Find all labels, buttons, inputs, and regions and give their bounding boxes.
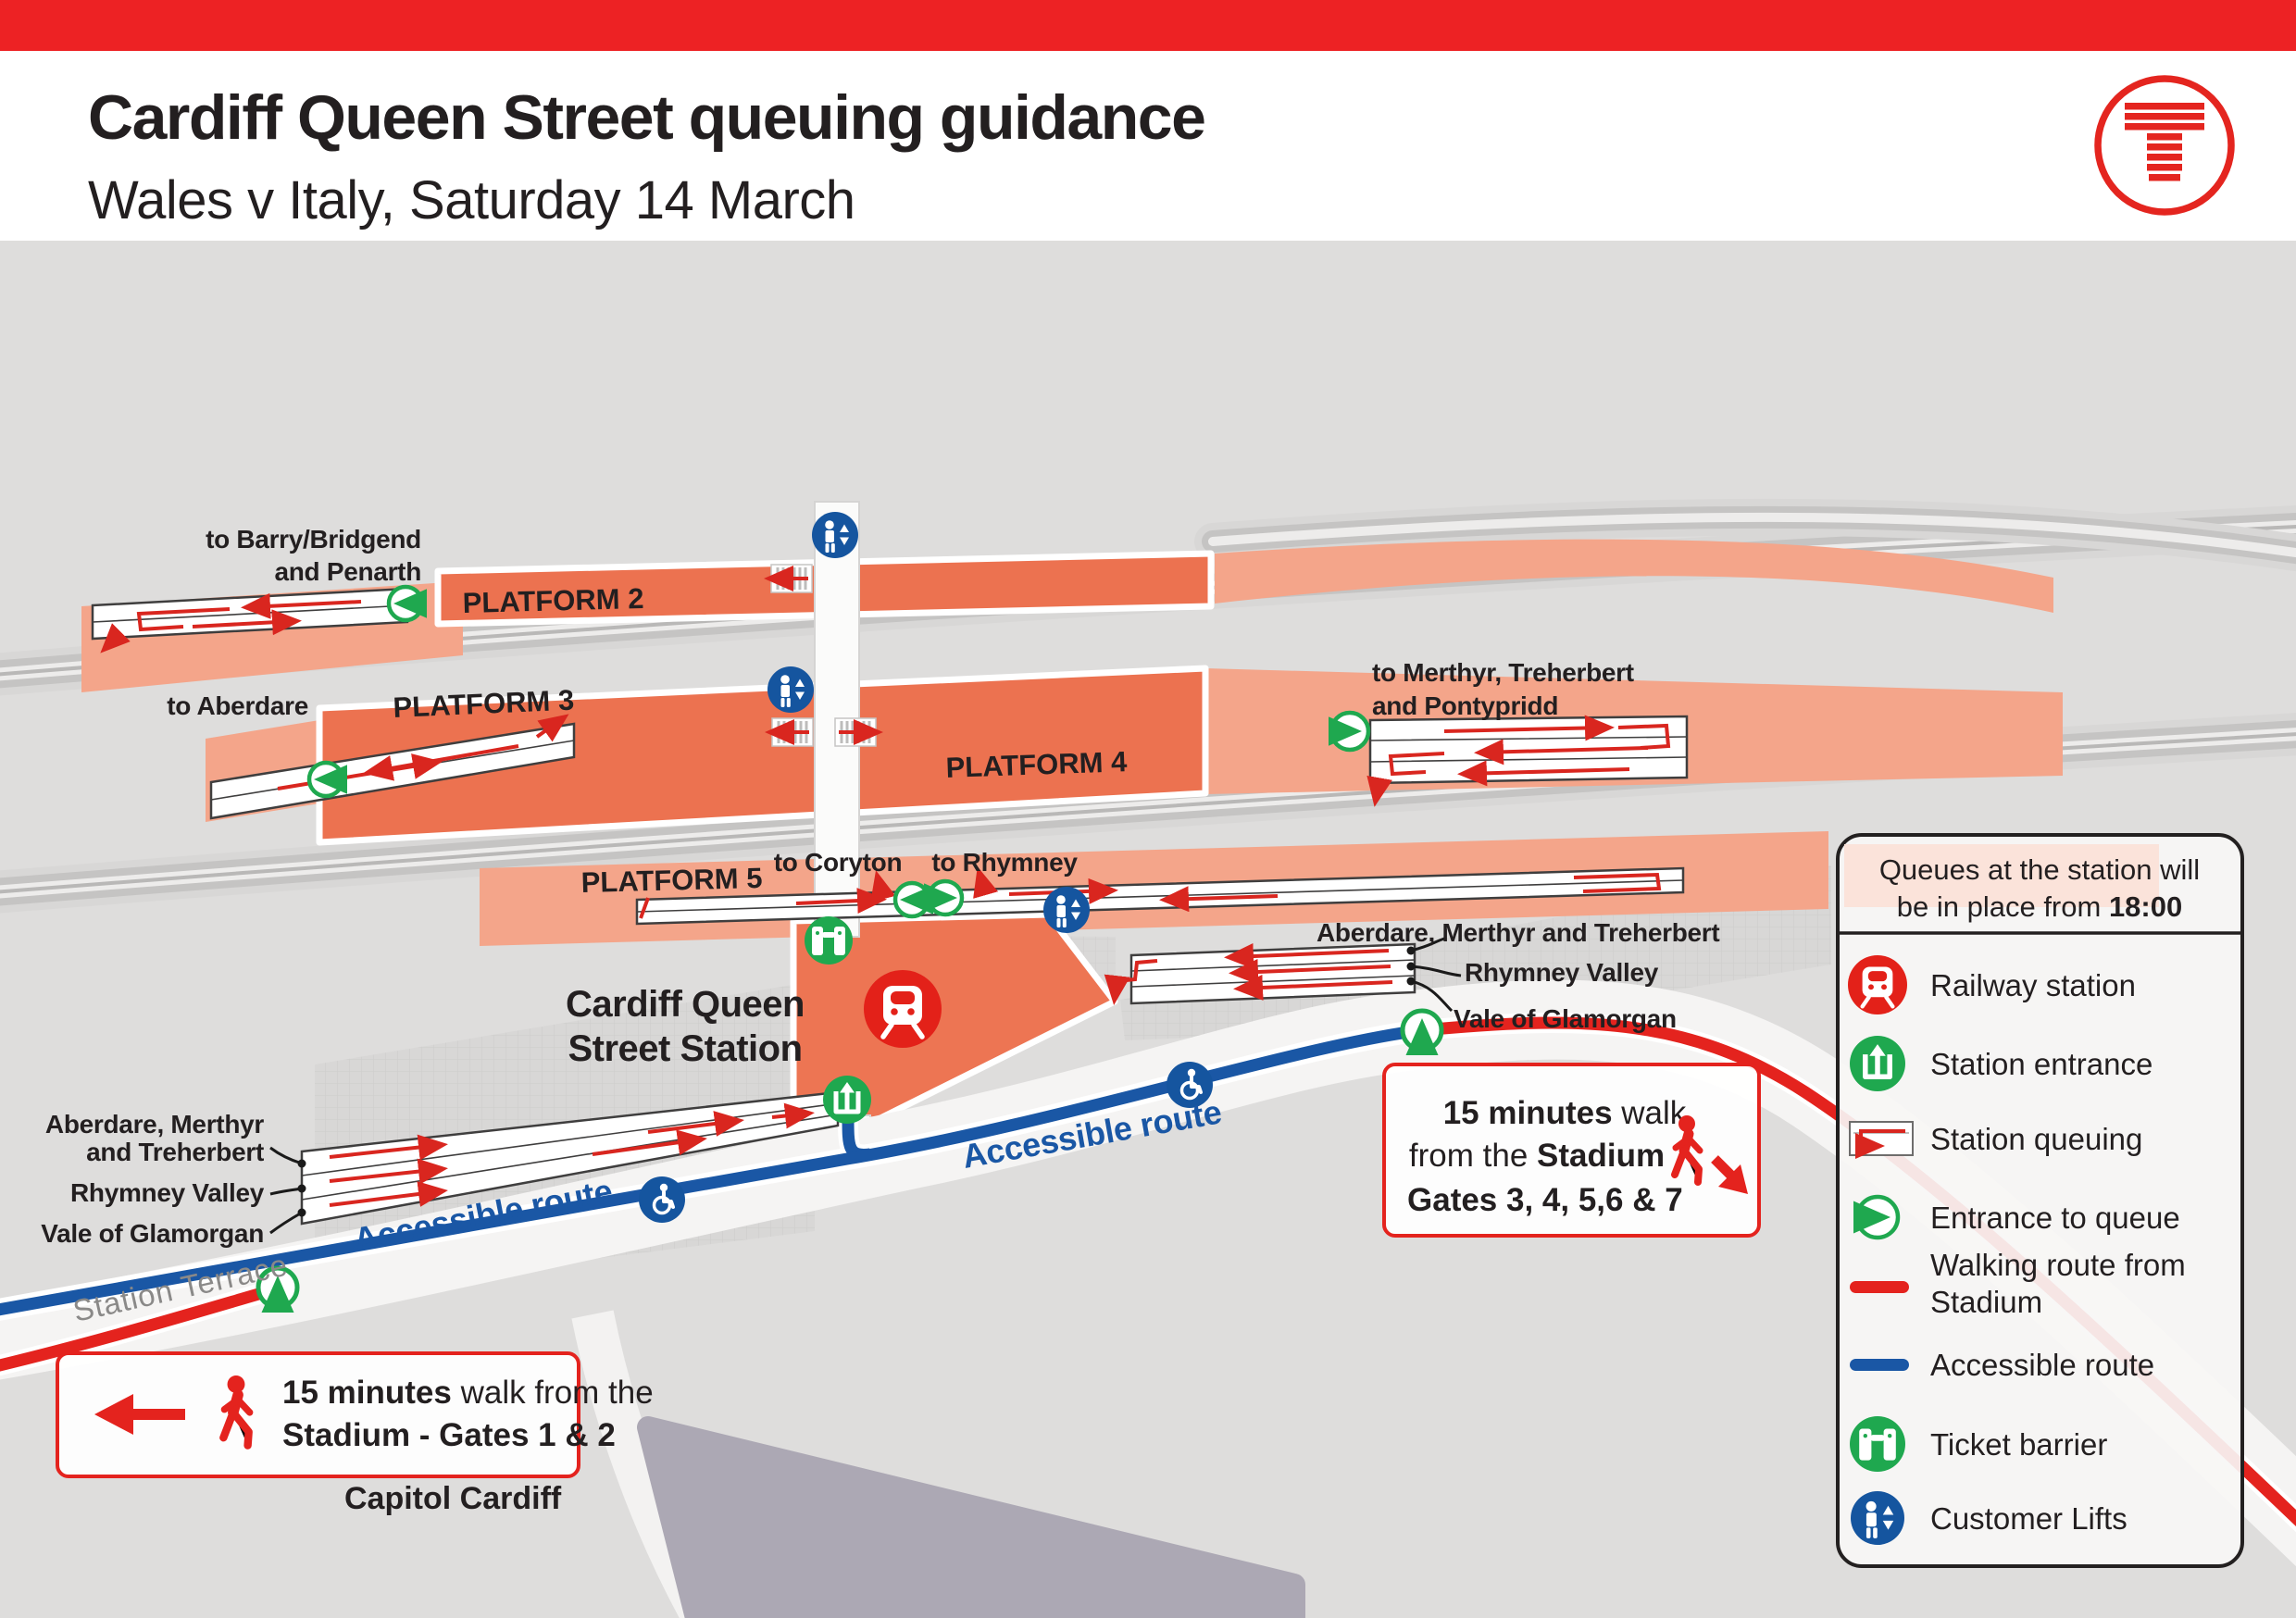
station-name-line2: Street Station (568, 1028, 802, 1069)
legend-railway-station-icon (1848, 955, 1907, 1014)
station-entrance-icon (823, 1076, 871, 1124)
legend-item-label: Walking route from (1930, 1248, 2186, 1282)
queue-entrance-icon-left-arrow (309, 763, 343, 796)
dest-coryton: to Coryton (774, 848, 903, 877)
platform-5-label: PLATFORM 5 (580, 862, 763, 899)
dest-merthyr-line1: to Merthyr, Treherbert (1372, 658, 1634, 687)
legend-item-label: Entrance to queue (1930, 1201, 2180, 1235)
queue-line-right-3: Vale of Glamorgan (1454, 1004, 1677, 1033)
customer-lift-icon (812, 512, 858, 558)
walk-box-right-line1: 15 minutes walk (1443, 1095, 1687, 1131)
header: Cardiff Queen Street queuing guidance Wa… (0, 0, 2296, 241)
dest-barry-line1: to Barry/Bridgend (206, 525, 421, 554)
station-name-line1: Cardiff Queen (566, 984, 805, 1025)
queue-line-left-1b: and Treherbert (86, 1138, 264, 1166)
walk-box-right-line2: from the Stadium (1409, 1138, 1665, 1174)
dest-barry-line2: and Penarth (274, 557, 421, 586)
queue-entrance-icon-right-arrow (1331, 713, 1368, 750)
walk-box-gates-3-7: 15 minutes walk from the Stadium Gates 3… (1384, 1064, 1759, 1236)
customer-lift-icon (767, 666, 814, 713)
legend-header-line1: Queues at the station will (1879, 853, 2200, 886)
railway-station-icon (864, 970, 942, 1048)
dest-merthyr-line2: and Pontypridd (1372, 691, 1558, 720)
legend-header-line2: be in place from 18:00 (1897, 890, 2182, 923)
customer-lift-icon (1043, 887, 1090, 933)
platform-2-label: PLATFORM 2 (462, 582, 644, 619)
queue-entrance-icon-right-arrow (929, 881, 962, 915)
legend-item-label: Station entrance (1930, 1047, 2152, 1081)
queuing-guidance-poster: PLATFORM 2 PLATFORM 3 PLATFORM 4 PLATFOR… (0, 0, 2296, 1618)
legend: Queues at the station will be in place f… (1838, 835, 2242, 1566)
map-canvas: PLATFORM 2 PLATFORM 3 PLATFORM 4 PLATFOR… (0, 0, 2296, 1618)
legend-walking-route-swatch (1850, 1281, 1909, 1293)
legend-customer-lifts-icon (1851, 1491, 1904, 1545)
queue-entrance-icon-left-arrow (895, 883, 929, 916)
queue-line-left-2: Rhymney Valley (70, 1178, 265, 1207)
queue-line-right-2: Rhymney Valley (1465, 958, 1659, 987)
walk-box-left-line1: 15 minutes walk from the (282, 1375, 654, 1411)
header-red-bar (0, 0, 2296, 51)
legend-item-label: Railway station (1930, 968, 2136, 1002)
legend-entrance-to-queue-icon (1857, 1197, 1898, 1238)
legend-accessible-route-swatch (1850, 1359, 1909, 1371)
legend-station-entrance-icon (1850, 1036, 1905, 1091)
platform-4-label: PLATFORM 4 (945, 745, 1129, 784)
legend-item-label: Customer Lifts (1930, 1501, 2128, 1536)
ticket-barrier-icon (805, 916, 853, 965)
page-subtitle: Wales v Italy, Saturday 14 March (88, 170, 855, 230)
legend-ticket-barrier-icon (1850, 1416, 1905, 1472)
capitol-cardiff-label: Capitol Cardiff (344, 1481, 562, 1516)
queue-entrance-icon-left-arrow (389, 587, 422, 620)
walk-box-left-line2: Stadium - Gates 1 & 2 (282, 1417, 616, 1453)
dest-aberdare: to Aberdare (167, 691, 308, 720)
legend-item-label: Ticket barrier (1930, 1427, 2107, 1462)
walk-box-gates-1-2: 15 minutes walk from the Stadium - Gates… (57, 1353, 654, 1476)
legend-item-label: Station queuing (1930, 1122, 2142, 1156)
stairs-icon (772, 718, 813, 746)
legend-item-label: Accessible route (1930, 1348, 2154, 1382)
page-title: Cardiff Queen Street queuing guidance (88, 82, 1204, 153)
stairs-icon (835, 718, 876, 746)
queue-line-right-1: Aberdare, Merthyr and Treherbert (1316, 918, 1719, 947)
walk-box-right-line3: Gates 3, 4, 5,6 & 7 (1407, 1182, 1683, 1218)
legend-item-label: Stadium (1930, 1285, 2042, 1319)
wheelchair-icon (639, 1176, 685, 1223)
stairs-icon (771, 565, 812, 592)
queue-line-left-1a: Aberdare, Merthyr (45, 1110, 264, 1139)
queue-line-left-3: Vale of Glamorgan (41, 1219, 264, 1248)
transport-for-wales-logo (2098, 79, 2231, 212)
legend-station-queuing-icon (1850, 1122, 1913, 1155)
queue-entrance-icon-up-arrow (1403, 1011, 1441, 1050)
dest-rhymney: to Rhymney (931, 848, 1078, 877)
